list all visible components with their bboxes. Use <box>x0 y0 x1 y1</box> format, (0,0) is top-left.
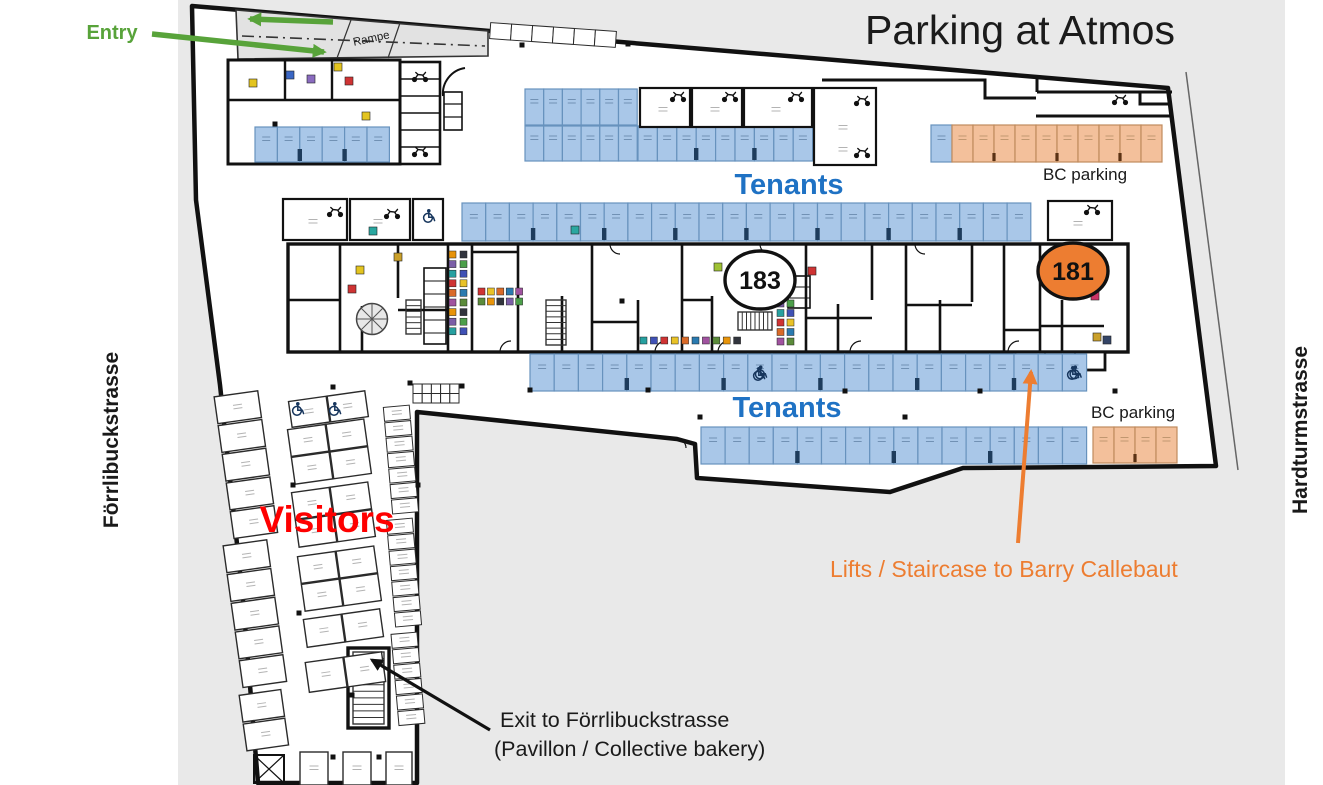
utility-icon <box>460 299 467 306</box>
structural-column <box>620 299 625 304</box>
parking-space-visitor <box>297 551 338 583</box>
parking-space-visitor <box>214 391 261 424</box>
parking-space-visitor <box>300 752 328 785</box>
parking-space-tenant <box>600 126 619 161</box>
structural-column <box>416 483 421 488</box>
space-label <box>920 214 928 215</box>
building-181-number: 181 <box>1052 258 1094 286</box>
space-label <box>612 218 620 219</box>
space-label <box>352 137 360 138</box>
utility-icon <box>506 288 513 295</box>
space-label <box>395 769 404 770</box>
parking-space-visitor <box>422 394 431 404</box>
parking-space-visitor <box>413 394 422 404</box>
space-label <box>285 137 293 138</box>
utility-icon <box>449 289 456 296</box>
utility-icon <box>777 329 784 336</box>
structural-column <box>350 693 355 698</box>
space-label <box>262 137 270 138</box>
parking-space-tenant <box>604 203 628 241</box>
space-label <box>683 365 691 366</box>
parking-space-visitor <box>389 467 416 483</box>
parking-space-tenant <box>797 427 821 464</box>
parking-space-tenant <box>865 203 889 241</box>
parking-space-visitor <box>342 609 384 642</box>
space-label <box>310 769 319 770</box>
space-label <box>636 218 644 219</box>
parking-space-visitor <box>394 611 421 627</box>
pillar <box>815 228 819 240</box>
parking-space-visitor <box>301 579 342 611</box>
parking-space-visitor <box>222 448 269 481</box>
space-label <box>754 214 762 215</box>
space-label <box>588 218 596 219</box>
utility-icon <box>1103 336 1111 344</box>
visitor-parking-cluster <box>287 419 371 484</box>
space-label <box>1015 218 1023 219</box>
space-label <box>920 218 928 219</box>
space-label <box>772 111 781 112</box>
utility-icon <box>787 329 794 336</box>
parking-space-tenant <box>931 125 952 162</box>
parking-space-tenant <box>628 203 652 241</box>
parking-space-bc <box>1057 125 1078 162</box>
parking-space-tenant <box>638 126 657 161</box>
parking-bay <box>413 199 443 240</box>
space-label <box>565 214 573 215</box>
space-label <box>683 136 691 137</box>
space-label <box>587 368 595 369</box>
space-label <box>754 218 762 219</box>
utility-icon <box>787 338 794 345</box>
space-label <box>683 139 691 140</box>
parking-space-visitor <box>490 23 512 40</box>
parking-space-tenant <box>619 89 638 125</box>
space-label <box>586 99 594 100</box>
space-label <box>538 365 546 366</box>
space-label <box>938 139 946 140</box>
space-label <box>530 139 538 140</box>
parking-space-tenant <box>581 126 600 161</box>
parking-bay <box>1048 201 1112 240</box>
parking-space-tenant <box>699 354 723 391</box>
utility-icon <box>460 280 467 287</box>
space-label <box>1085 136 1093 137</box>
parking-space-visitor <box>392 580 419 596</box>
space-label <box>562 368 570 369</box>
parking-space-visitor <box>396 694 423 710</box>
space-label <box>663 136 671 137</box>
space-label <box>950 368 958 369</box>
parking-space-tenant <box>770 203 794 241</box>
space-label <box>711 111 720 112</box>
parking-space-visitor <box>422 384 431 394</box>
space-label <box>839 129 848 130</box>
parking-space-visitor <box>594 30 616 47</box>
space-label <box>1043 136 1051 137</box>
parking-space-bc <box>1156 427 1177 463</box>
utility-icon <box>449 280 456 287</box>
space-label <box>980 139 988 140</box>
utility-icon <box>506 298 513 305</box>
space-label <box>711 107 720 108</box>
entry-label: Entry <box>86 22 138 44</box>
space-label <box>470 218 478 219</box>
space-label <box>998 438 1006 439</box>
parking-space-visitor <box>303 614 345 647</box>
structural-column <box>297 611 302 616</box>
parking-space-visitor <box>450 384 459 394</box>
space-label <box>708 368 716 369</box>
parking-space-tenant <box>277 127 299 162</box>
space-label <box>549 139 557 140</box>
space-label <box>974 368 982 369</box>
space-label <box>612 214 620 215</box>
parking-space-tenant <box>1062 354 1086 391</box>
space-label <box>683 214 691 215</box>
parking-space-tenant <box>544 126 563 161</box>
space-label <box>926 441 934 442</box>
space-label <box>950 438 958 439</box>
space-label <box>329 140 337 141</box>
visitor-parking-cluster <box>343 752 371 785</box>
space-label <box>470 214 478 215</box>
parking-row-bc-top <box>931 125 1162 162</box>
space-label <box>635 368 643 369</box>
space-label <box>1071 441 1079 442</box>
space-label <box>830 438 838 439</box>
space-label <box>733 438 741 439</box>
space-label <box>1071 438 1079 439</box>
parking-space-tenant <box>725 427 749 464</box>
parking-space-tenant <box>657 126 676 161</box>
parking-space-visitor <box>391 498 418 514</box>
parking-space-visitor <box>390 482 417 498</box>
space-label <box>1022 368 1030 369</box>
utility-icon <box>345 77 353 85</box>
space-label <box>1163 437 1171 438</box>
space-label <box>1001 136 1009 137</box>
space-label <box>878 441 886 442</box>
parking-space-tenant <box>652 203 676 241</box>
space-label <box>1043 139 1051 140</box>
space-label <box>950 441 958 442</box>
parking-space-visitor <box>223 540 270 573</box>
space-label <box>731 218 739 219</box>
pillar <box>1012 378 1016 390</box>
parking-space-tenant <box>990 354 1014 391</box>
space-label <box>968 218 976 219</box>
parking-space-visitor <box>392 648 419 664</box>
parking-space-tenant <box>966 427 990 464</box>
parking-space-tenant <box>774 126 793 161</box>
structural-column <box>1113 389 1118 394</box>
space-label <box>926 438 934 439</box>
pillar <box>694 148 698 160</box>
space-label <box>517 218 525 219</box>
space-label <box>721 139 729 140</box>
parking-space-tenant <box>990 427 1014 464</box>
utility-icon <box>1093 333 1101 341</box>
space-label <box>605 103 613 104</box>
space-label <box>709 441 717 442</box>
utility-icon <box>777 310 784 317</box>
space-label <box>659 365 667 366</box>
pillar <box>298 149 302 161</box>
space-label <box>896 214 904 215</box>
space-label <box>873 214 881 215</box>
parking-space-tenant <box>794 203 818 241</box>
space-label <box>825 214 833 215</box>
parking-space-tenant <box>820 354 844 391</box>
pillar <box>744 228 748 240</box>
space-label <box>804 368 812 369</box>
parking-space-tenant <box>746 203 770 241</box>
parking-space-visitor <box>531 26 553 43</box>
parking-space-visitor <box>441 384 450 394</box>
parking-space-tenant <box>846 427 870 464</box>
parking-space-visitor <box>511 24 533 41</box>
parking-space-tenant <box>581 203 605 241</box>
parking-space-tenant <box>796 354 820 391</box>
parking-space-visitor <box>227 569 274 602</box>
utility-icon <box>713 337 720 344</box>
parking-space-tenant <box>322 127 344 162</box>
space-label <box>530 103 538 104</box>
parking-space-tenant <box>917 354 941 391</box>
parking-space-tenant <box>581 89 600 125</box>
pillar <box>673 228 677 240</box>
parking-space-visitor <box>390 564 417 580</box>
space-label <box>374 219 383 220</box>
parking-space-visitor <box>344 652 386 687</box>
space-label <box>395 766 404 767</box>
utility-icon <box>487 288 494 295</box>
space-label <box>624 103 632 104</box>
parking-space-bc <box>1015 125 1036 162</box>
structural-column <box>646 388 651 393</box>
parking-space-tenant <box>1007 203 1031 241</box>
space-label <box>839 147 848 148</box>
space-label <box>877 365 885 366</box>
space-label <box>1046 368 1054 369</box>
utility-icon <box>487 298 494 305</box>
exit-label-line1: Exit to Förrlibuckstrasse <box>500 708 729 732</box>
space-label <box>624 99 632 100</box>
parking-space-visitor <box>336 546 377 578</box>
tenants-label-top: Tenants <box>734 169 843 201</box>
space-label <box>829 365 837 366</box>
parking-space-tenant <box>893 354 917 391</box>
utility-icon <box>307 75 315 83</box>
parking-space-tenant <box>818 203 842 241</box>
parking-space-visitor <box>431 394 440 404</box>
parking-space-visitor <box>393 595 420 611</box>
parking-space-tenant <box>533 203 557 241</box>
space-label <box>925 368 933 369</box>
parking-space-visitor <box>552 27 574 44</box>
parking-space-visitor <box>450 394 459 404</box>
parking-space-bc <box>1114 427 1135 463</box>
parking-space-tenant <box>754 126 773 161</box>
space-label <box>562 365 570 366</box>
parking-space-tenant <box>841 203 865 241</box>
building-183-badge: 183 <box>725 251 795 309</box>
structural-column <box>843 389 848 394</box>
parking-space-tenant <box>889 203 913 241</box>
space-label <box>307 137 315 138</box>
space-label <box>849 214 857 215</box>
structural-column <box>978 389 983 394</box>
parking-space-visitor <box>218 420 265 453</box>
space-label <box>1100 441 1108 442</box>
building-181-badge: 181 <box>1038 243 1108 299</box>
parking-space-visitor <box>340 574 381 606</box>
utility-icon <box>497 298 504 305</box>
parking-space-visitor <box>291 452 332 484</box>
utility-icon <box>787 319 794 326</box>
structural-column <box>460 384 465 389</box>
utility-icon <box>460 251 467 258</box>
parking-space-visitor <box>289 396 330 427</box>
pillar <box>988 451 992 463</box>
space-label <box>757 438 765 439</box>
space-label <box>799 139 807 140</box>
space-label <box>635 365 643 366</box>
parking-space-visitor <box>330 447 371 479</box>
space-label <box>586 136 594 137</box>
parking-space-tenant <box>723 203 747 241</box>
space-label <box>950 365 958 366</box>
utility-icon <box>734 337 741 344</box>
visitor-parking-cluster <box>297 546 381 611</box>
space-label <box>549 99 557 100</box>
parking-space-tenant <box>942 427 966 464</box>
parking-space-visitor <box>383 405 410 421</box>
utility-icon <box>692 337 699 344</box>
space-label <box>353 766 362 767</box>
parking-space-visitor <box>441 394 450 404</box>
utility-icon <box>286 71 294 79</box>
space-label <box>1064 139 1072 140</box>
utility-icon <box>516 288 523 295</box>
pillar <box>1055 153 1058 161</box>
parking-space-tenant <box>701 427 725 464</box>
parking-space-bc <box>1099 125 1120 162</box>
space-label <box>1085 139 1093 140</box>
space-label <box>708 365 716 366</box>
space-label <box>374 137 382 138</box>
building-183-number: 183 <box>739 267 781 295</box>
utility-icon <box>723 337 730 344</box>
space-label <box>998 365 1006 366</box>
space-label <box>611 368 619 369</box>
page-title: Parking at Atmos <box>865 7 1175 53</box>
parking-space-visitor <box>231 597 278 630</box>
parking-space-tenant <box>696 126 715 161</box>
space-label <box>802 214 810 215</box>
structural-column <box>273 122 278 127</box>
utility-icon <box>478 298 485 305</box>
utility-icon <box>369 227 377 235</box>
parking-space-tenant <box>822 427 846 464</box>
space-label <box>902 438 910 439</box>
space-label <box>659 111 668 112</box>
utility-icon <box>777 319 784 326</box>
space-label <box>998 441 1006 442</box>
space-label <box>1163 441 1171 442</box>
pillar <box>531 228 535 240</box>
parking-space-tenant <box>603 354 627 391</box>
structural-column <box>331 385 336 390</box>
parking-space-tenant <box>255 127 277 162</box>
space-label <box>285 140 293 141</box>
space-label <box>586 103 594 104</box>
parking-space-tenant <box>793 126 812 161</box>
utility-icon <box>640 337 647 344</box>
tenants-label-bottom: Tenants <box>732 392 841 424</box>
parking-row-mid-block-top <box>525 89 637 125</box>
utility-icon <box>682 337 689 344</box>
utility-icon <box>516 298 523 305</box>
spiral-staircase <box>357 304 388 335</box>
parking-space-bc <box>1036 125 1057 162</box>
parking-space-visitor <box>239 689 284 722</box>
space-label <box>707 218 715 219</box>
space-label <box>778 218 786 219</box>
space-label <box>709 438 717 439</box>
pillar <box>721 378 725 390</box>
parking-space-bc <box>1141 125 1162 162</box>
parking-row-tenants-lower-2 <box>701 427 1087 464</box>
pillar <box>818 378 822 390</box>
space-label <box>1046 441 1054 442</box>
parking-space-bc <box>1078 125 1099 162</box>
space-label <box>707 214 715 215</box>
parking-space-visitor <box>305 657 347 692</box>
visitors-label: Visitors <box>259 499 394 540</box>
parking-space-visitor <box>573 28 595 45</box>
space-label <box>588 214 596 215</box>
space-label <box>959 136 967 137</box>
space-label <box>1148 136 1156 137</box>
pillar <box>958 228 962 240</box>
visitor-parking-cluster <box>413 384 459 403</box>
utility-icon <box>777 338 784 345</box>
space-label <box>778 214 786 215</box>
lifts-label: Lifts / Staircase to Barry Callebaut <box>830 556 1178 582</box>
utility-icon <box>460 309 467 316</box>
space-label <box>733 441 741 442</box>
parking-space-visitor <box>385 421 412 437</box>
space-label <box>991 214 999 215</box>
parking-space-tenant <box>651 354 675 391</box>
space-label <box>374 140 382 141</box>
parking-space-visitor <box>239 655 286 688</box>
space-label <box>959 139 967 140</box>
utility-icon <box>394 253 402 261</box>
bc-parking-label-bottom: BC parking <box>1091 403 1175 422</box>
space-label <box>1127 139 1135 140</box>
parking-space-tenant <box>675 354 699 391</box>
parking-row-mid-block-bottom <box>525 126 637 161</box>
space-label <box>991 218 999 219</box>
parking-space-bc <box>1120 125 1141 162</box>
space-label <box>568 103 576 104</box>
space-label <box>896 218 904 219</box>
space-label <box>901 365 909 366</box>
parking-space-tenant <box>557 203 581 241</box>
